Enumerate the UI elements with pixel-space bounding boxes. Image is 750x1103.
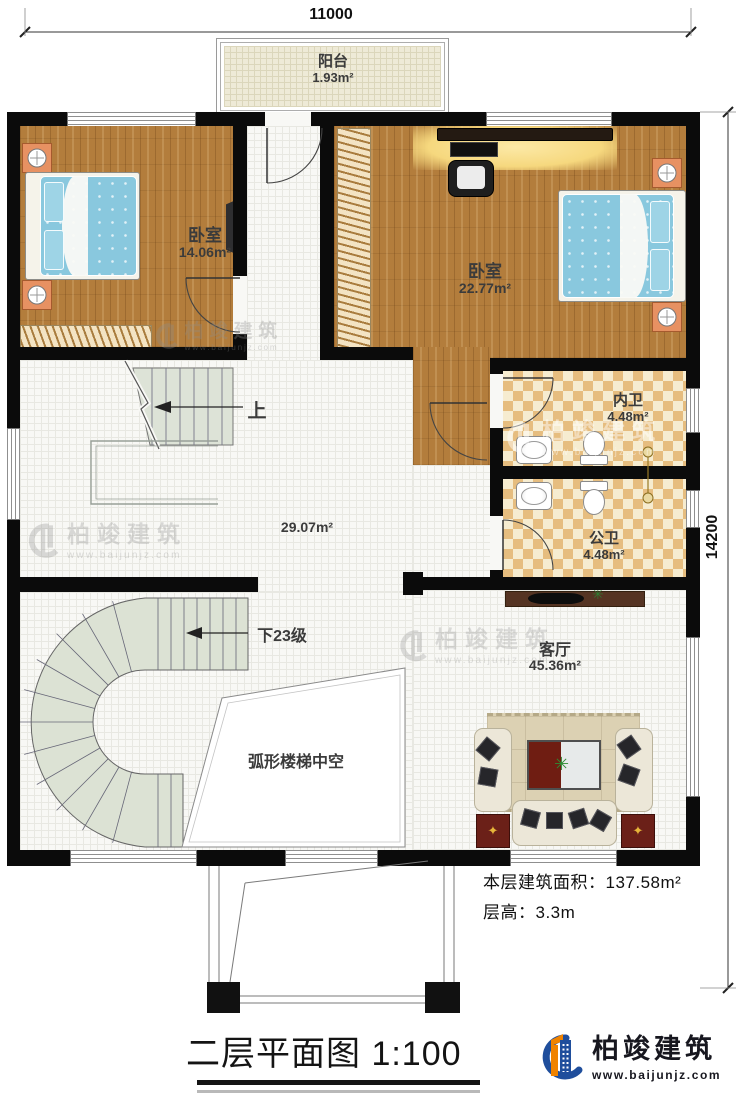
bedroom2-door-arc	[430, 403, 487, 460]
floor-height-note-value: 3.3m	[536, 903, 576, 922]
room-area-balcony: 1.93m²	[283, 70, 383, 85]
room-label-inner-bath: 内卫	[598, 389, 658, 410]
title-underline-shadow	[197, 1090, 480, 1093]
floor-plan-canvas: ✳ ✳ ✦ ✦	[0, 0, 750, 1103]
porch-column	[207, 982, 240, 1013]
dimension-top-label: 11000	[296, 6, 366, 24]
brand-name: 柏竣建筑	[592, 1036, 721, 1063]
room-area-bedroom1: 14.06m²	[155, 244, 255, 260]
floor-area-note-value: 137.58m²	[606, 873, 682, 892]
room-area-inner-bath: 4.48m²	[594, 409, 662, 424]
room-area-living: 45.36m²	[513, 657, 597, 673]
balcony-door-arc	[267, 128, 322, 183]
room-label-balcony: 阳台	[283, 50, 383, 71]
room-area-public-bath: 4.48m²	[570, 547, 638, 562]
porch-column	[425, 982, 460, 1013]
room-area-hall: 29.07m²	[267, 519, 347, 535]
porch-outline	[209, 861, 454, 1003]
stair-void-label: 弧形楼梯中空	[238, 748, 354, 772]
drawing-title-text: 二层平面图	[186, 1035, 361, 1073]
inner-bath-door-arc	[503, 378, 553, 428]
floor-area-note: 本层建筑面积：137.58m²	[483, 868, 681, 893]
brand-logo: 柏竣建筑 www.baijunjz.com	[536, 1032, 721, 1086]
bedroom1-door-arc	[186, 278, 240, 332]
title-underline	[197, 1080, 480, 1085]
stair-down-label: 下23级	[250, 622, 314, 646]
brand-logo-icon	[536, 1032, 584, 1086]
drawing-scale: 1:100	[371, 1035, 461, 1073]
shower-head-icon	[643, 493, 653, 503]
room-label-bedroom1: 卧室	[155, 221, 255, 246]
hall-railing	[91, 441, 218, 504]
floor-height-note-label: 层高：	[483, 903, 536, 922]
floor-area-note-label: 本层建筑面积：	[483, 873, 606, 892]
shower-head-icon	[643, 447, 653, 457]
floor-height-note: 层高：3.3m	[483, 898, 575, 923]
brand-site: www.baijunjz.com	[592, 1068, 721, 1082]
drawing-title: 二层平面图 1:100	[186, 1026, 466, 1075]
stair-up-label: 上	[244, 396, 270, 423]
room-area-bedroom2: 22.77m²	[433, 280, 537, 296]
room-label-bedroom2: 卧室	[435, 257, 535, 282]
room-label-public-bath: 公卫	[574, 527, 634, 548]
public-bath-door-arc	[503, 520, 553, 570]
dimension-right-label: 14200	[704, 507, 722, 567]
